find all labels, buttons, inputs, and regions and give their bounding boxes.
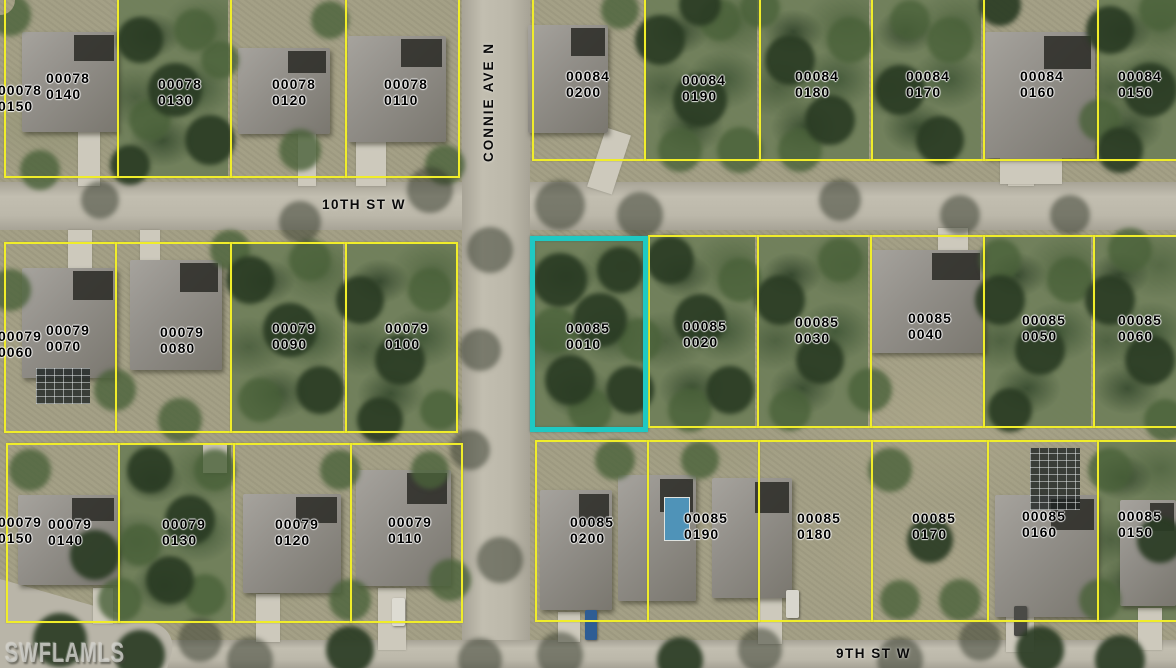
parcel-divider-line bbox=[987, 440, 989, 622]
parcel-label: 000850200 bbox=[570, 514, 636, 546]
parcel-divider-line bbox=[230, 242, 232, 433]
parcel-label: 000840190 bbox=[682, 72, 748, 104]
parcel-label: 000780110 bbox=[384, 76, 450, 108]
parcel-label: 000850030 bbox=[795, 314, 861, 346]
parcel-label: 000790130 bbox=[162, 516, 228, 548]
subject-parcel-label: 000850010 bbox=[566, 320, 632, 352]
parcel-label: 000850160 bbox=[1022, 508, 1088, 540]
parcel-divider-line bbox=[644, 0, 646, 161]
parcel-divider-line bbox=[759, 0, 761, 161]
parcel-label: 000780120 bbox=[272, 76, 338, 108]
parcel-divider-line bbox=[230, 0, 232, 178]
parcel-divider-line bbox=[983, 0, 985, 161]
parcel-divider-line bbox=[870, 235, 872, 428]
parcel-label: 000850190 bbox=[684, 510, 750, 542]
parcel-label: 000780130 bbox=[158, 76, 224, 108]
parcel-label: 000840180 bbox=[795, 68, 861, 100]
mls-watermark: SWFLAMLS bbox=[5, 637, 125, 668]
parcel-label: 000790140 bbox=[48, 516, 114, 548]
parcel-divider-line bbox=[117, 0, 119, 178]
parcel-divider-line bbox=[1097, 0, 1099, 161]
road-connie-ave-n bbox=[462, 0, 530, 668]
parcel-divider-line bbox=[345, 242, 347, 433]
parcel-divider-line bbox=[350, 443, 352, 623]
parcel-label: 000790070 bbox=[46, 322, 112, 354]
parcel-divider-line bbox=[115, 242, 117, 433]
road-10th-st-w bbox=[0, 182, 1176, 230]
parcel-label: 000840200 bbox=[566, 68, 632, 100]
parcel-label: 000790100 bbox=[385, 320, 451, 352]
driveway bbox=[1000, 158, 1062, 184]
parcel-label: 000780140 bbox=[46, 70, 112, 102]
parcel-divider-line bbox=[647, 440, 649, 622]
parcel-divider-line bbox=[871, 0, 873, 161]
parcel-divider-line bbox=[871, 440, 873, 622]
parcel-divider-line bbox=[983, 235, 985, 428]
parcel-label: 000850020 bbox=[683, 318, 749, 350]
parcel-label: 000790090 bbox=[272, 320, 338, 352]
parcel-label: 000840170 bbox=[906, 68, 972, 100]
parcel-divider-line bbox=[118, 443, 120, 623]
street-label-connie-ave-n: CONNIE AVE N bbox=[481, 42, 496, 162]
parcel-label: 000840160 bbox=[1020, 68, 1086, 100]
aerial-parcel-map: 0007801500007801400007801300007801200007… bbox=[0, 0, 1176, 668]
parcel-label: 000790120 bbox=[275, 516, 341, 548]
parcel-divider-line bbox=[1093, 235, 1095, 428]
parcel-divider-line bbox=[233, 443, 235, 623]
parcel-label: 000850050 bbox=[1022, 312, 1088, 344]
parcel-divider-line bbox=[758, 440, 760, 622]
parcel-divider-line bbox=[345, 0, 347, 178]
parcel-label: 000850180 bbox=[797, 510, 863, 542]
street-label-9th-st-w: 9TH ST W bbox=[836, 646, 911, 661]
parcel-label: 000840150 bbox=[1118, 68, 1176, 100]
parcel-label: 000790110 bbox=[388, 514, 454, 546]
street-label-10th-st-w: 10TH ST W bbox=[322, 197, 406, 212]
parcel-divider-line bbox=[757, 235, 759, 428]
parcel-label: 000850040 bbox=[908, 310, 974, 342]
parcel-label: 000850060 bbox=[1118, 312, 1176, 344]
parcel-label: 000850170 bbox=[912, 510, 978, 542]
parcel-divider-line bbox=[1097, 440, 1099, 622]
parcel-label: 000850150 bbox=[1118, 508, 1176, 540]
road-9th-st-w bbox=[0, 640, 1176, 668]
parcel-label: 000790080 bbox=[160, 324, 226, 356]
